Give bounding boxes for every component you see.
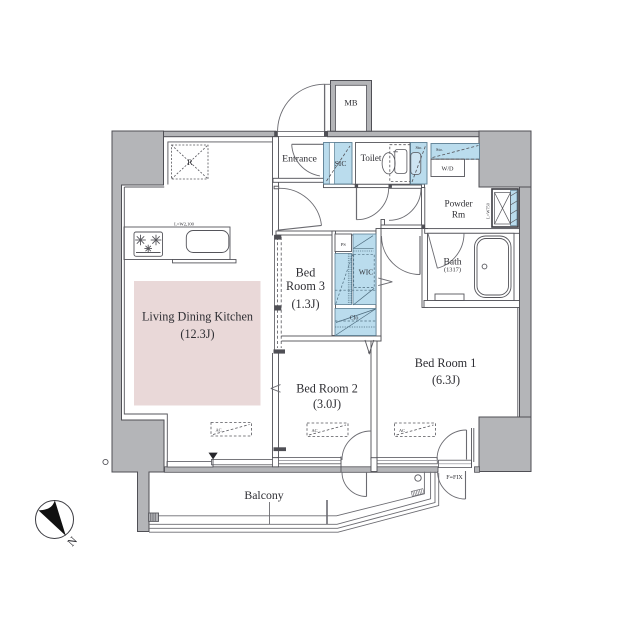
svg-text:(12.3J): (12.3J)	[180, 327, 214, 341]
svg-text:W/D: W/D	[441, 166, 454, 173]
svg-text:Sto.: Sto.	[436, 147, 443, 152]
svg-text:Powder: Powder	[444, 199, 472, 209]
svg-text:WIC: WIC	[359, 268, 374, 277]
svg-text:F≡FIX: F≡FIX	[446, 475, 463, 481]
svg-text:Living Dining Kitchen: Living Dining Kitchen	[142, 310, 253, 324]
svg-text:L=W750: L=W750	[486, 202, 491, 219]
svg-text:PS: PS	[341, 242, 347, 247]
svg-text:R: R	[187, 157, 193, 167]
svg-text:Entrance: Entrance	[282, 154, 317, 165]
svg-text:Room 3: Room 3	[286, 279, 325, 293]
svg-text:(1.3J): (1.3J)	[291, 297, 319, 311]
svg-text:Rm: Rm	[452, 210, 465, 220]
svg-text:Clo: Clo	[350, 316, 359, 322]
svg-text:(3.0J): (3.0J)	[313, 397, 341, 411]
svg-text:Bed: Bed	[296, 266, 316, 280]
svg-text:AC: AC	[311, 428, 317, 433]
svg-text:AC: AC	[399, 428, 405, 433]
svg-text:MB: MB	[344, 98, 358, 108]
svg-text:Balcony: Balcony	[244, 488, 283, 502]
svg-text:AC: AC	[215, 428, 221, 433]
svg-text:(6.3J): (6.3J)	[432, 373, 460, 387]
svg-text:Toilet: Toilet	[361, 153, 382, 163]
svg-text:SIC: SIC	[335, 159, 347, 168]
svg-text:Sto.: Sto.	[416, 145, 423, 150]
svg-text:Bed Room 1: Bed Room 1	[415, 356, 477, 370]
svg-text:Bed Room 2: Bed Room 2	[296, 381, 358, 395]
svg-text:(1317): (1317)	[444, 267, 461, 274]
